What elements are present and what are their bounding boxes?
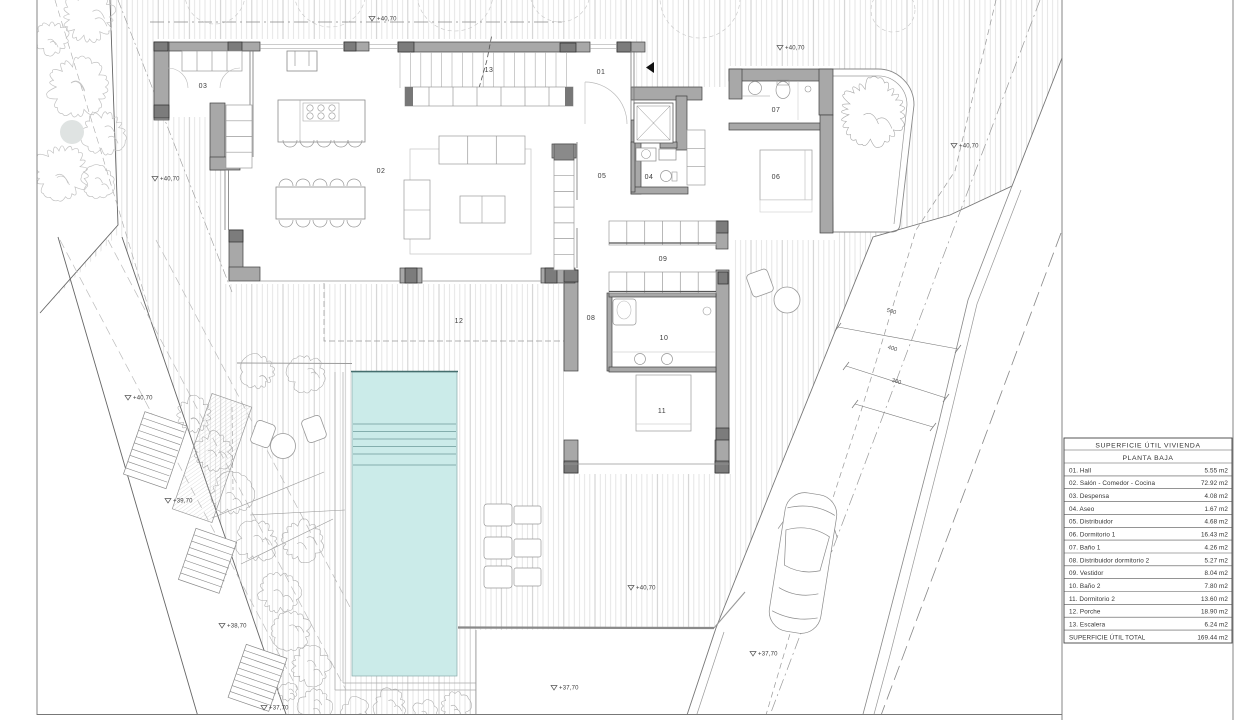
svg-text:08. Distribuidor dormitorio 2: 08. Distribuidor dormitorio 2 <box>1069 557 1150 564</box>
svg-text:5.55 m2: 5.55 m2 <box>1205 467 1229 474</box>
svg-text:4.68 m2: 4.68 m2 <box>1205 519 1229 526</box>
svg-text:+40,70: +40,70 <box>133 396 153 402</box>
svg-text:06. Dormitorio 1: 06. Dormitorio 1 <box>1069 532 1116 539</box>
svg-text:+38,70: +38,70 <box>227 624 247 630</box>
svg-text:07: 07 <box>772 107 781 114</box>
svg-text:6.24 m2: 6.24 m2 <box>1205 622 1229 629</box>
svg-text:04. Aseo: 04. Aseo <box>1069 506 1095 513</box>
svg-text:01: 01 <box>597 69 606 76</box>
svg-text:4.08 m2: 4.08 m2 <box>1205 493 1229 500</box>
svg-text:SUPERFICIE ÚTIL TOTAL: SUPERFICIE ÚTIL TOTAL <box>1069 632 1146 641</box>
svg-text:+37,70: +37,70 <box>758 652 778 658</box>
svg-text:4.26 m2: 4.26 m2 <box>1205 544 1229 551</box>
svg-text:169.44 m2: 169.44 m2 <box>1197 634 1228 641</box>
svg-text:5.27 m2: 5.27 m2 <box>1205 557 1229 564</box>
svg-text:12: 12 <box>455 318 464 325</box>
svg-text:09. Vestidor: 09. Vestidor <box>1069 570 1103 577</box>
svg-text:07. Baño 1: 07. Baño 1 <box>1069 544 1101 551</box>
svg-text:10. Baño 2: 10. Baño 2 <box>1069 583 1101 590</box>
svg-text:12. Porche: 12. Porche <box>1069 609 1101 616</box>
svg-text:+40,70: +40,70 <box>785 46 805 52</box>
svg-text:11: 11 <box>658 408 666 415</box>
svg-text:13.60 m2: 13.60 m2 <box>1201 596 1228 603</box>
svg-text:08: 08 <box>587 315 596 322</box>
svg-text:+37,70: +37,70 <box>269 706 289 712</box>
svg-text:11. Dormitorio 2: 11. Dormitorio 2 <box>1069 596 1115 603</box>
svg-text:1.67 m2: 1.67 m2 <box>1205 506 1229 513</box>
svg-text:18.90 m2: 18.90 m2 <box>1201 609 1228 616</box>
svg-text:+40,70: +40,70 <box>636 586 656 592</box>
svg-text:+39,70: +39,70 <box>173 499 193 505</box>
svg-text:02. Salón - Comedor - Cocina: 02. Salón - Comedor - Cocina <box>1069 480 1155 487</box>
svg-text:13: 13 <box>485 67 494 74</box>
svg-text:7.80 m2: 7.80 m2 <box>1205 583 1229 590</box>
svg-text:02: 02 <box>377 168 386 175</box>
svg-text:+40,70: +40,70 <box>959 144 979 150</box>
svg-text:05. Distribuidor: 05. Distribuidor <box>1069 519 1113 526</box>
svg-text:03. Despensa: 03. Despensa <box>1069 493 1109 500</box>
svg-text:01. Hall: 01. Hall <box>1069 467 1091 474</box>
svg-text:09: 09 <box>659 256 668 263</box>
svg-text:03: 03 <box>199 83 208 90</box>
svg-text:16.43 m2: 16.43 m2 <box>1201 532 1228 539</box>
svg-text:13. Escalera: 13. Escalera <box>1069 622 1106 629</box>
svg-text:+37,70: +37,70 <box>559 686 579 692</box>
svg-text:SUPERFICIE ÚTIL VIVIENDA: SUPERFICIE ÚTIL VIVIENDA <box>1095 441 1200 450</box>
svg-text:8.04 m2: 8.04 m2 <box>1205 570 1229 577</box>
svg-text:+40,70: +40,70 <box>160 177 180 183</box>
svg-text:06: 06 <box>772 174 781 181</box>
svg-text:04: 04 <box>645 174 654 181</box>
svg-text:72.92 m2: 72.92 m2 <box>1201 480 1228 487</box>
svg-text:05: 05 <box>598 173 607 180</box>
svg-text:10: 10 <box>660 335 669 342</box>
svg-text:PLANTA BAJA: PLANTA BAJA <box>1122 455 1173 462</box>
svg-text:+40,70: +40,70 <box>377 17 397 23</box>
